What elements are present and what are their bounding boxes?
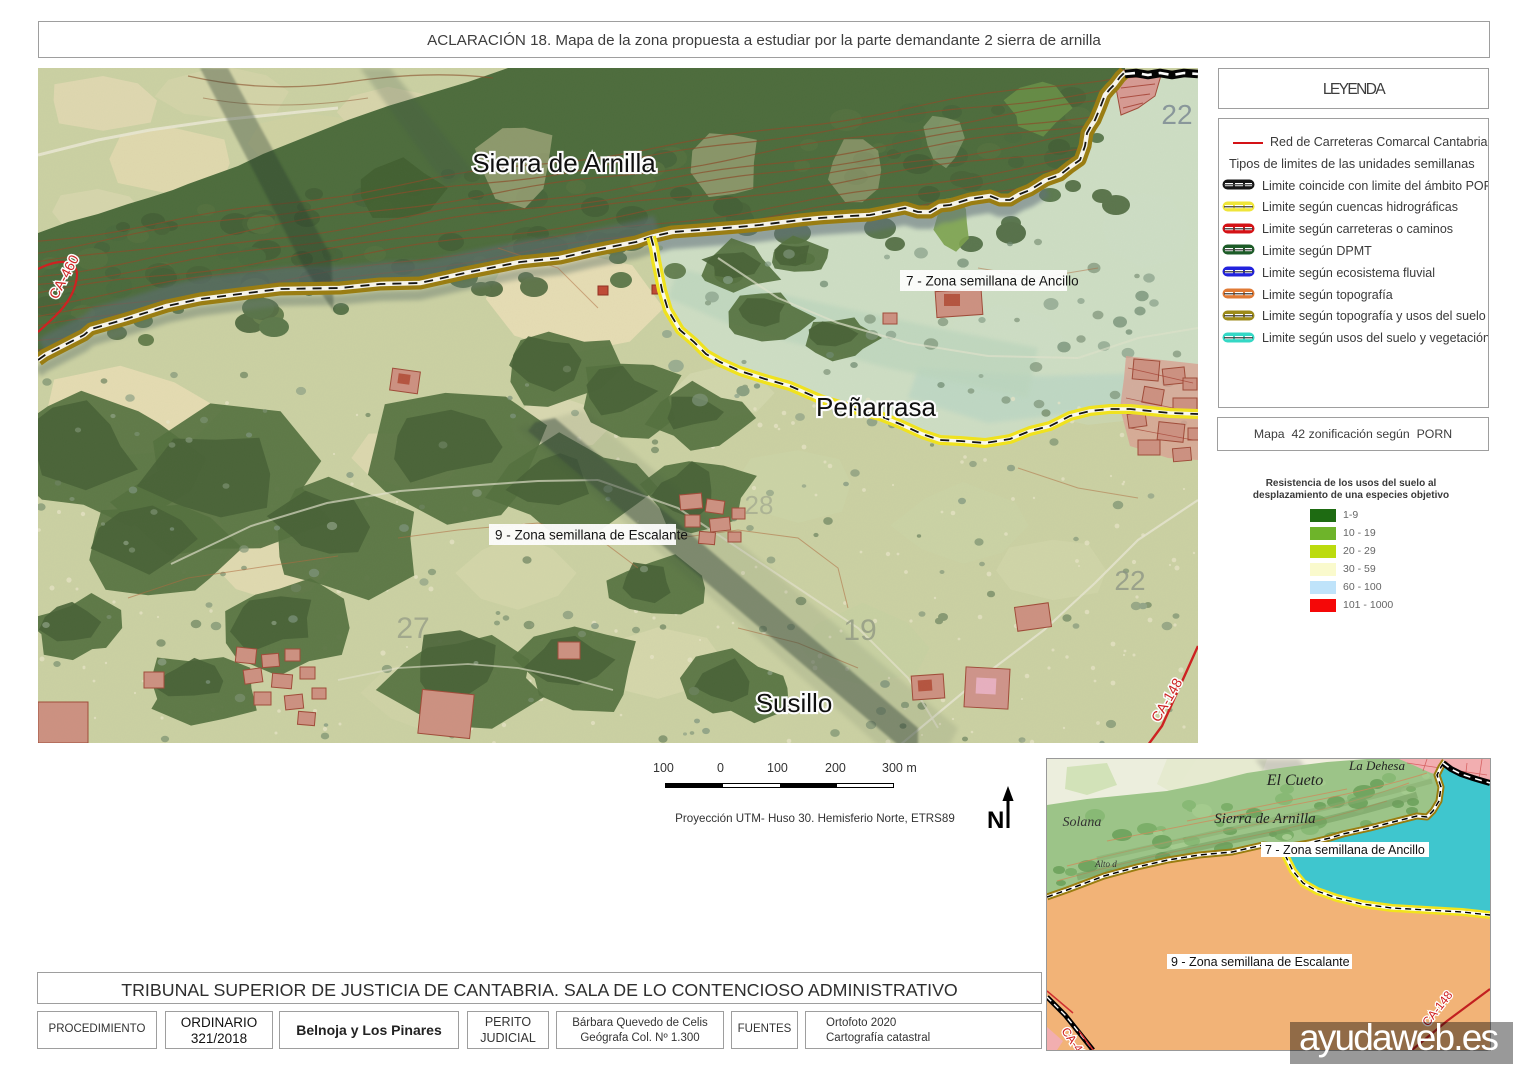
svg-text:La Dehesa: La Dehesa	[1348, 759, 1405, 773]
svg-text:El Cueto: El Cueto	[1266, 772, 1323, 789]
svg-text:9 - Zona semillana de Escalant: 9 - Zona semillana de Escalante	[1171, 955, 1350, 969]
svg-text:Solana: Solana	[1063, 815, 1102, 830]
svg-text:N: N	[987, 807, 1004, 832]
svg-text:Alto d: Alto d	[1094, 859, 1117, 869]
svg-text:7 - Zona semillana de Ancillo: 7 - Zona semillana de Ancillo	[1265, 843, 1425, 857]
svg-text:Sierra de Arnilla: Sierra de Arnilla	[1214, 811, 1315, 827]
